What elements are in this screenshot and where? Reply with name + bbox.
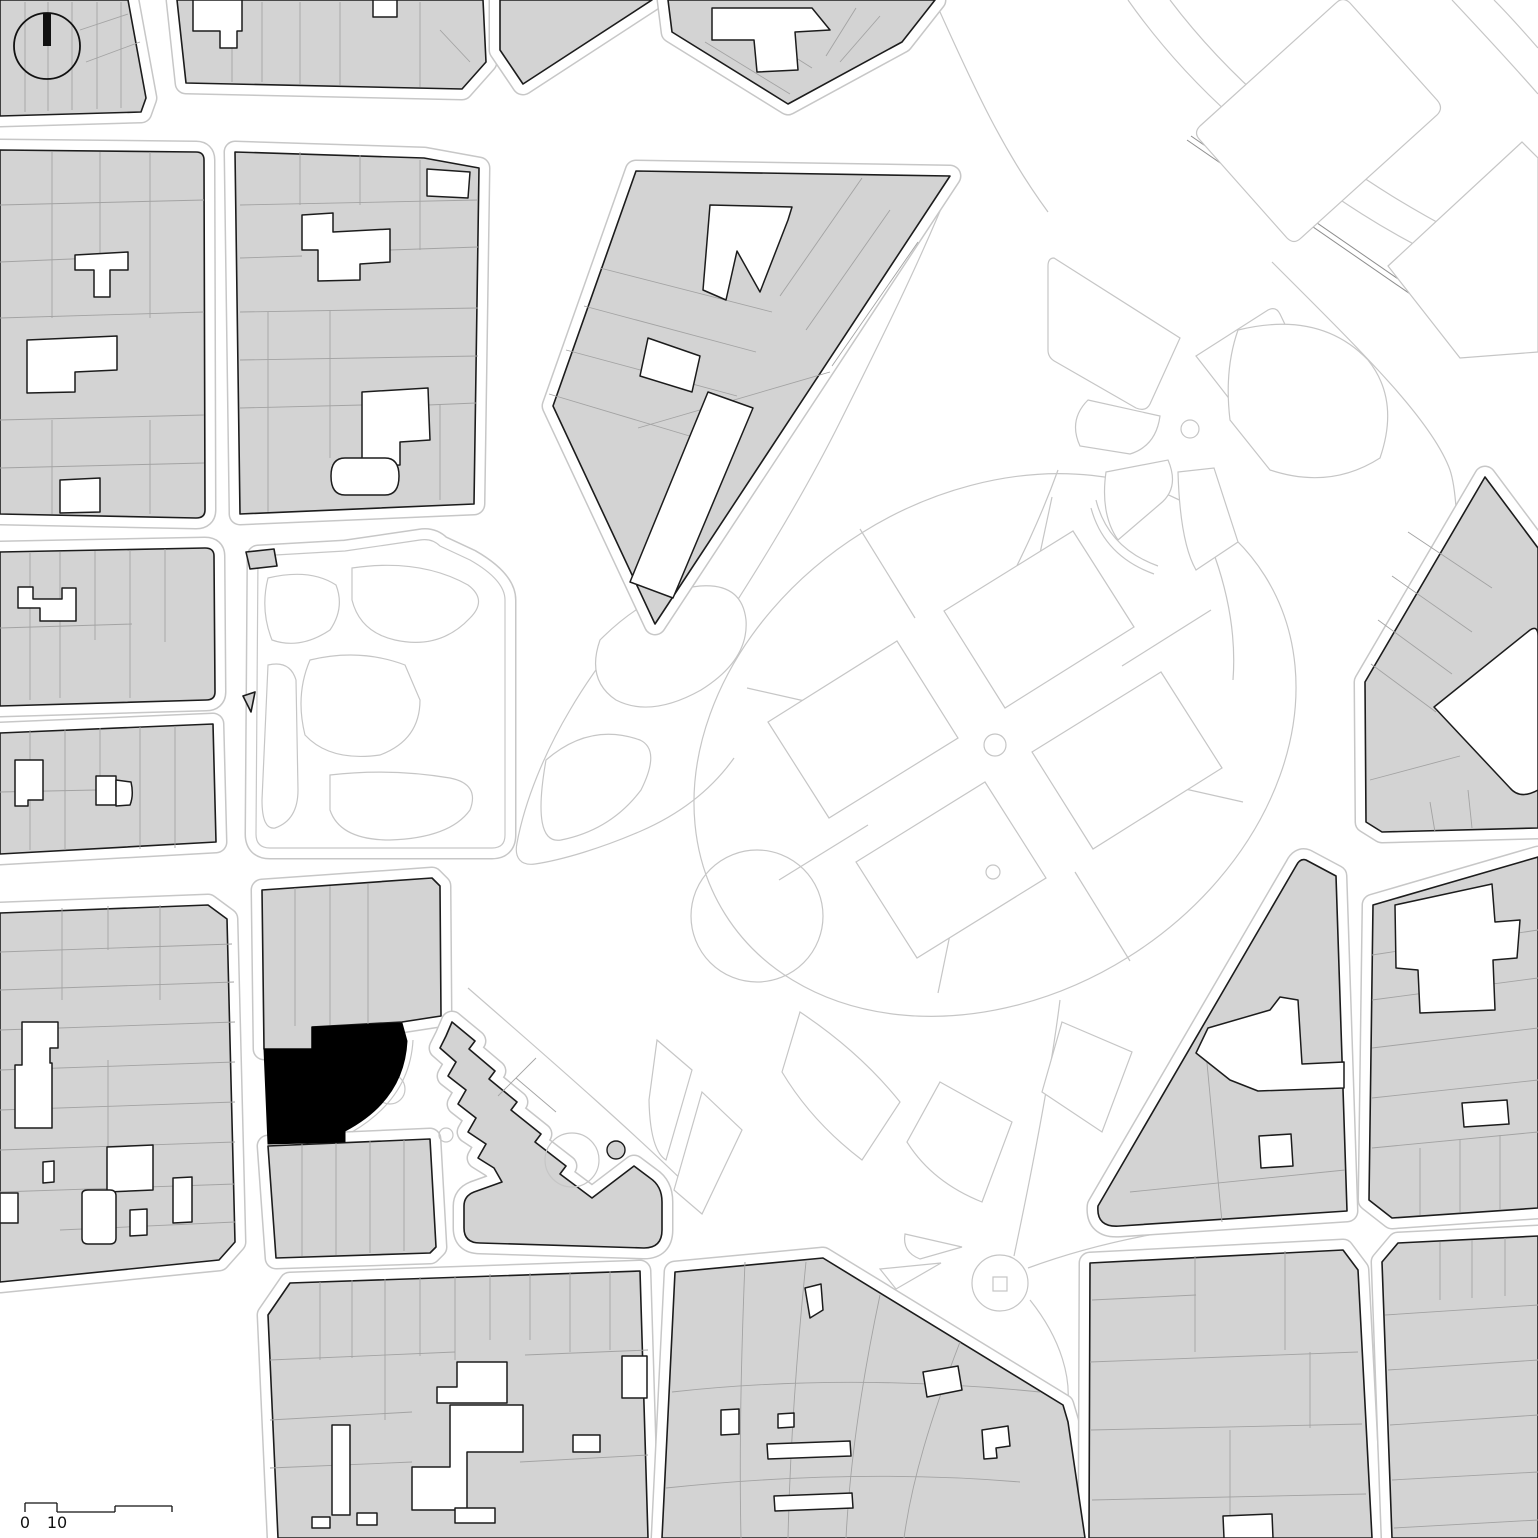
building-courtyard: [0, 1193, 18, 1223]
park-path: [1494, 0, 1538, 48]
park-path: [1178, 468, 1238, 570]
park-path: [856, 782, 1046, 958]
block-left-2a: [0, 150, 205, 518]
building-courtyard: [60, 478, 100, 513]
park-path: [541, 734, 651, 840]
park-path: [972, 1255, 1028, 1311]
building-courtyard: [116, 780, 132, 806]
building-courtyard: [332, 1425, 350, 1515]
building-courtyard: [721, 1409, 739, 1435]
building-courtyard: [173, 1177, 192, 1223]
map-detail: [607, 1141, 625, 1159]
building-courtyard: [43, 1161, 54, 1183]
scale-bar: 0 10: [20, 1503, 172, 1532]
building-courtyard: [455, 1508, 495, 1523]
building-courtyard: [774, 1493, 853, 1511]
park-path: [649, 1040, 692, 1160]
building-courtyard: [96, 776, 116, 805]
site-plan-svg: 0 10: [0, 0, 1538, 1538]
garden-bit-1: [246, 549, 277, 569]
building-courtyard: [107, 1145, 153, 1192]
park-path: [1042, 1022, 1132, 1132]
site-plan: 0 10: [0, 0, 1538, 1538]
park-path: [1075, 872, 1130, 961]
block-top-1: [0, 0, 146, 116]
building-courtyard: [573, 1435, 600, 1452]
park-path: [1215, 557, 1234, 680]
building-courtyard: [331, 458, 399, 495]
north-arrow-needle: [43, 13, 51, 46]
park-path: [860, 529, 915, 618]
building-courtyard: [427, 169, 470, 198]
building-courtyard: [1223, 1514, 1273, 1538]
building-courtyard: [767, 1441, 851, 1459]
map-detail: [439, 1128, 453, 1142]
scale-label-zero: 0: [20, 1513, 30, 1532]
building-courtyard: [373, 0, 397, 17]
building-courtyard: [1259, 1134, 1293, 1168]
block-site-lower: [268, 1139, 436, 1258]
building-courtyard: [622, 1356, 647, 1398]
block-top-3: [500, 0, 652, 84]
park-path: [1388, 142, 1538, 358]
building-courtyard: [357, 1513, 377, 1525]
park-path: [779, 825, 868, 880]
scale-label-ten: 10: [47, 1513, 67, 1532]
park-path: [1014, 1000, 1060, 1256]
park-path: [691, 850, 823, 982]
park-path: [768, 641, 958, 818]
building-courtyard: [1462, 1100, 1509, 1127]
park-path: [1197, 0, 1441, 242]
building-courtyard: [778, 1413, 794, 1428]
park-path: [1048, 258, 1180, 409]
building-courtyard: [15, 760, 43, 806]
park-path: [905, 1234, 962, 1259]
block-bottom-4: [1382, 1236, 1538, 1538]
park-path: [1181, 420, 1199, 438]
park-path: [674, 1092, 742, 1214]
scale-bar-line: [25, 1503, 172, 1512]
park-path: [782, 1012, 900, 1160]
building-courtyard: [312, 1517, 330, 1528]
garden-square: [256, 540, 505, 848]
park-path: [1032, 672, 1222, 849]
park-path: [1105, 460, 1173, 540]
building-courtyard: [82, 1190, 116, 1244]
park-path: [993, 1277, 1007, 1291]
park-path: [1452, 0, 1538, 94]
building-courtyard: [15, 1022, 58, 1128]
park-path: [907, 1082, 1012, 1202]
park-path: [1122, 610, 1211, 666]
park-path: [1228, 324, 1387, 477]
park-path: [944, 531, 1134, 708]
building-courtyard: [130, 1209, 147, 1236]
park-path: [984, 734, 1006, 756]
